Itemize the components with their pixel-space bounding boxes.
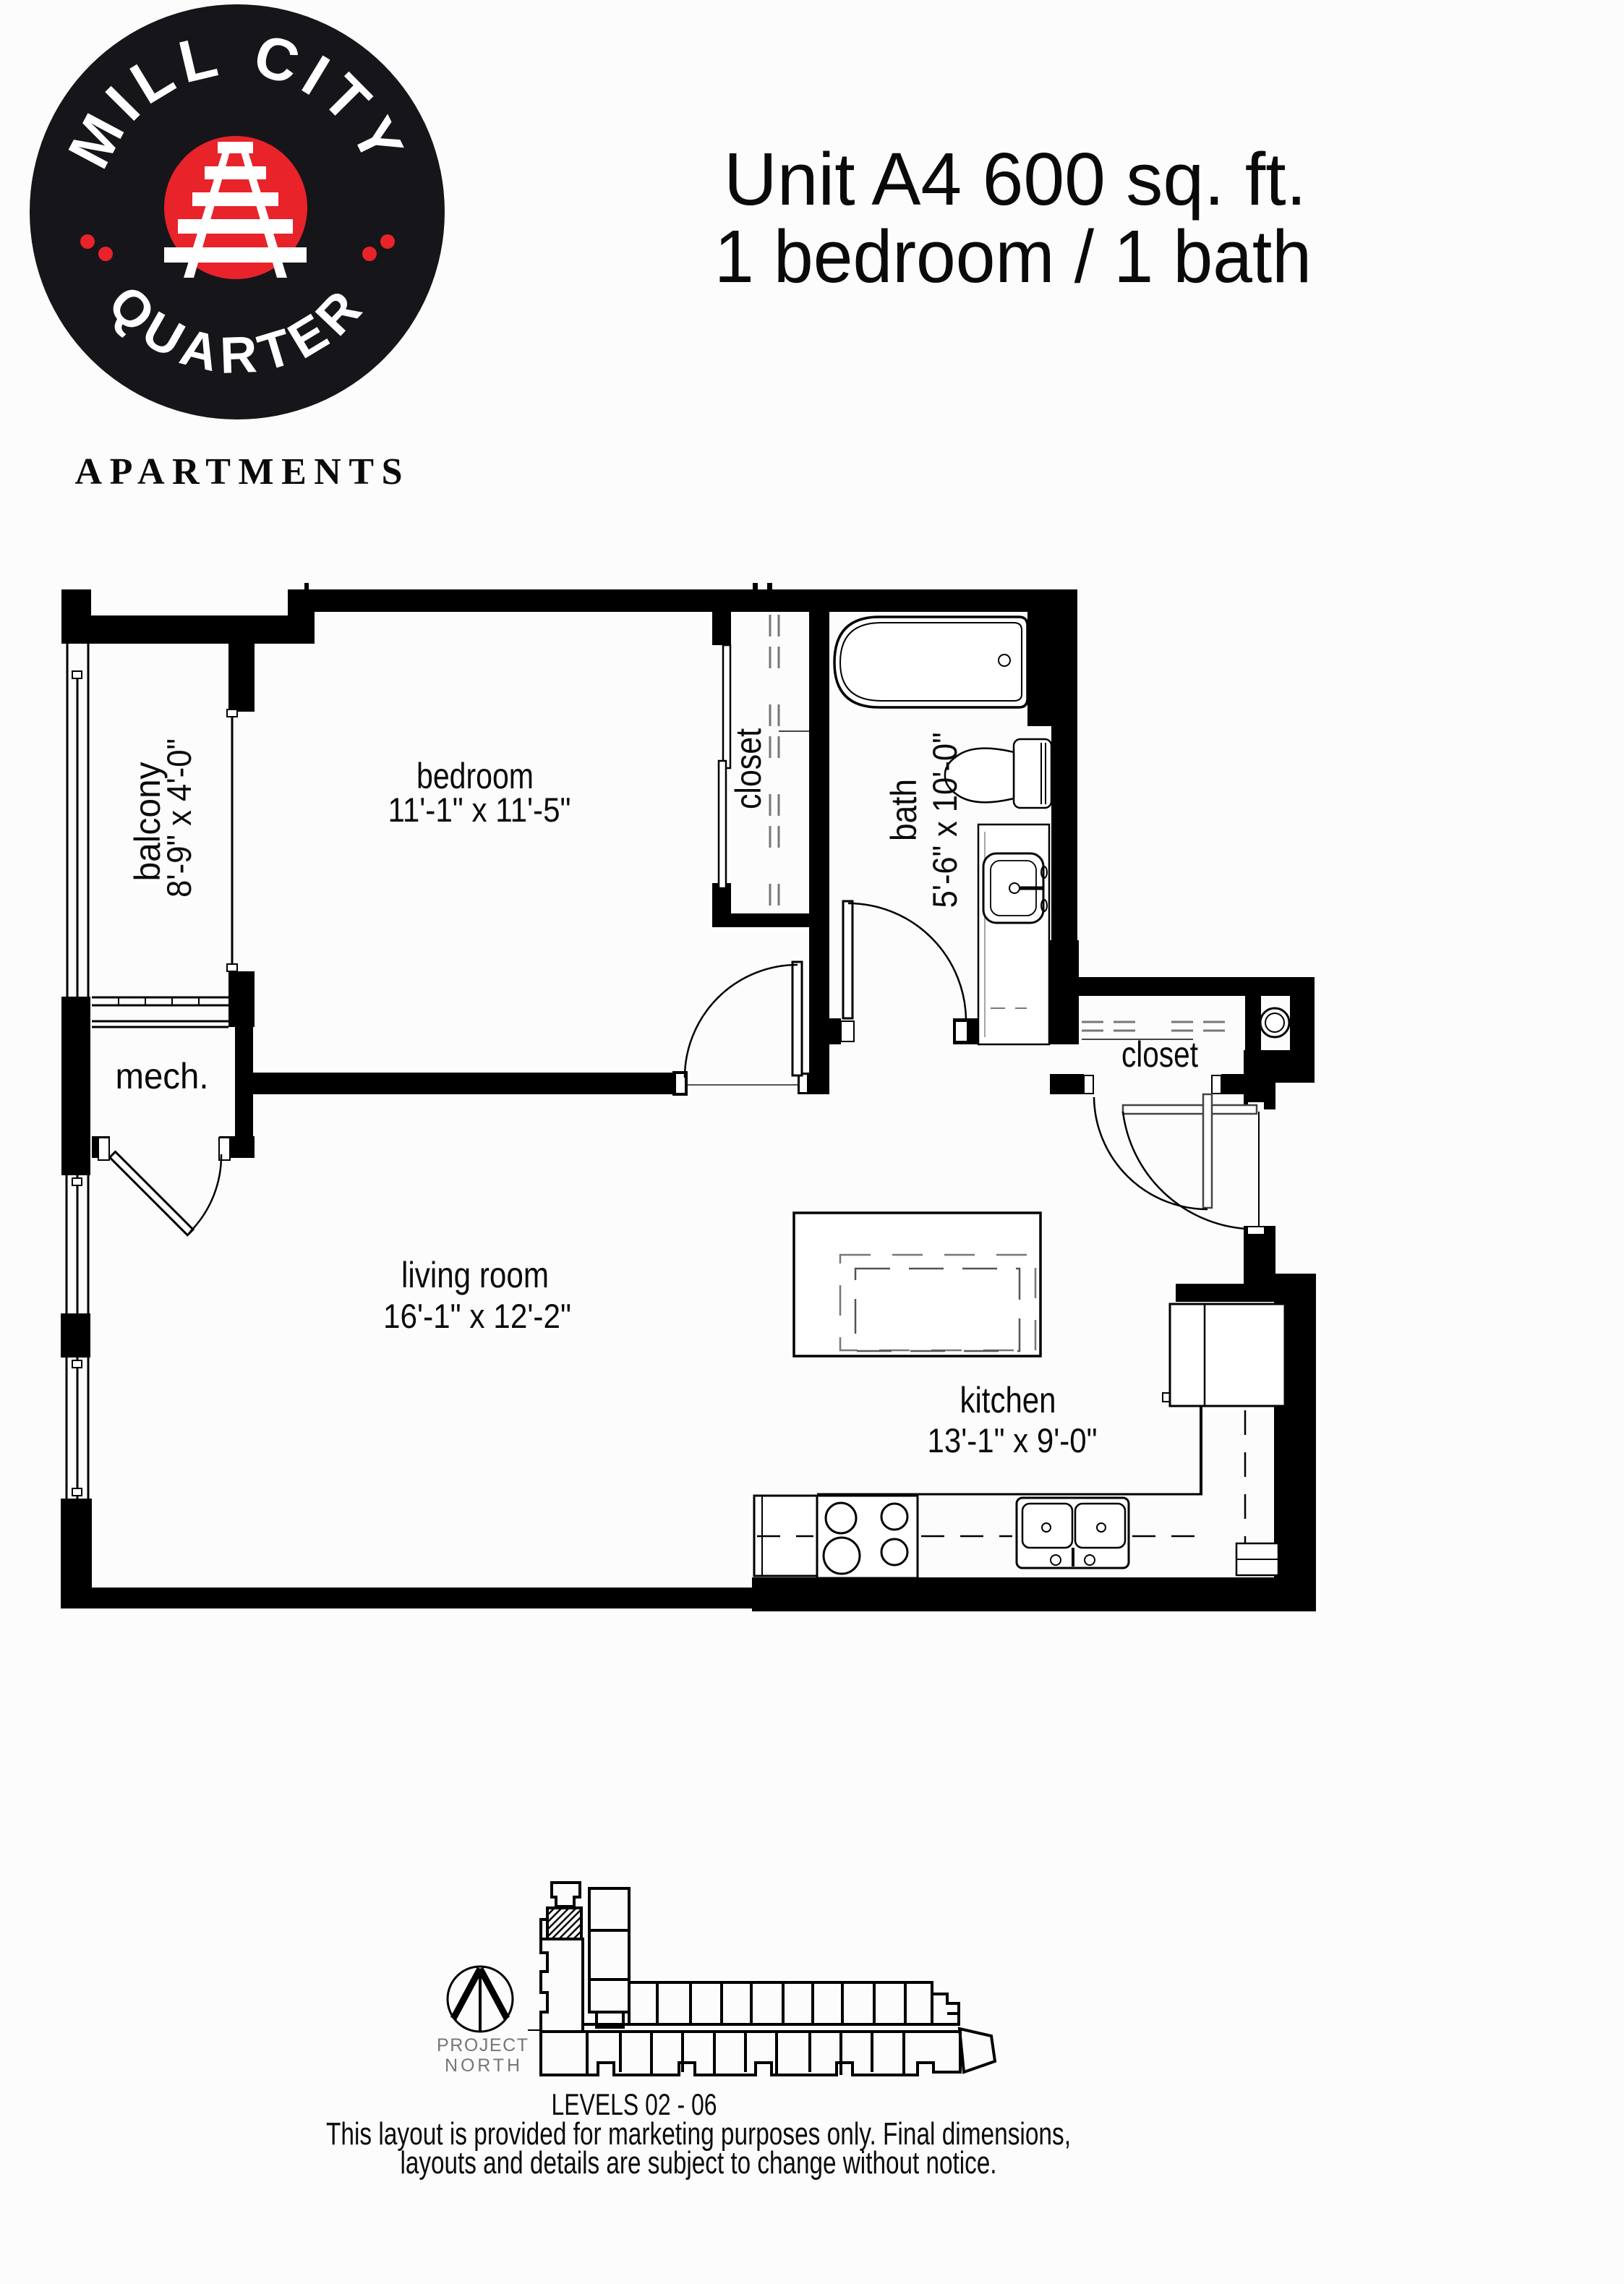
svg-text:13'-1" x 9'-0": 13'-1" x 9'-0" (928, 1421, 1098, 1460)
svg-text:kitchen: kitchen (960, 1380, 1056, 1420)
svg-text:NORTH: NORTH (445, 2055, 520, 2076)
svg-text:layouts and details are subjec: layouts and details are subject to chang… (401, 2145, 997, 2181)
svg-text:bath: bath (884, 779, 924, 841)
svg-text:1 bedroom / 1 bath: 1 bedroom / 1 bath (714, 215, 1312, 298)
svg-text:11'-1" x 11'-5": 11'-1" x 11'-5" (388, 791, 571, 829)
svg-text:16'-1" x 12'-2": 16'-1" x 12'-2" (383, 1297, 571, 1335)
svg-text:mech.: mech. (116, 1056, 209, 1096)
svg-text:APARTMENTS: APARTMENTS (75, 451, 403, 493)
svg-text:closet: closet (728, 728, 769, 809)
svg-text:living room: living room (401, 1255, 549, 1295)
svg-text:Unit A4 600 sq. ft.: Unit A4 600 sq. ft. (724, 137, 1307, 221)
svg-text:closet: closet (1121, 1034, 1198, 1075)
svg-text:PROJECT: PROJECT (437, 2035, 528, 2055)
svg-text:8'-9" x 4'-0": 8'-9" x 4'-0" (160, 738, 198, 898)
svg-text:5'-6" x 10'-0": 5'-6" x 10'-0" (926, 733, 964, 908)
